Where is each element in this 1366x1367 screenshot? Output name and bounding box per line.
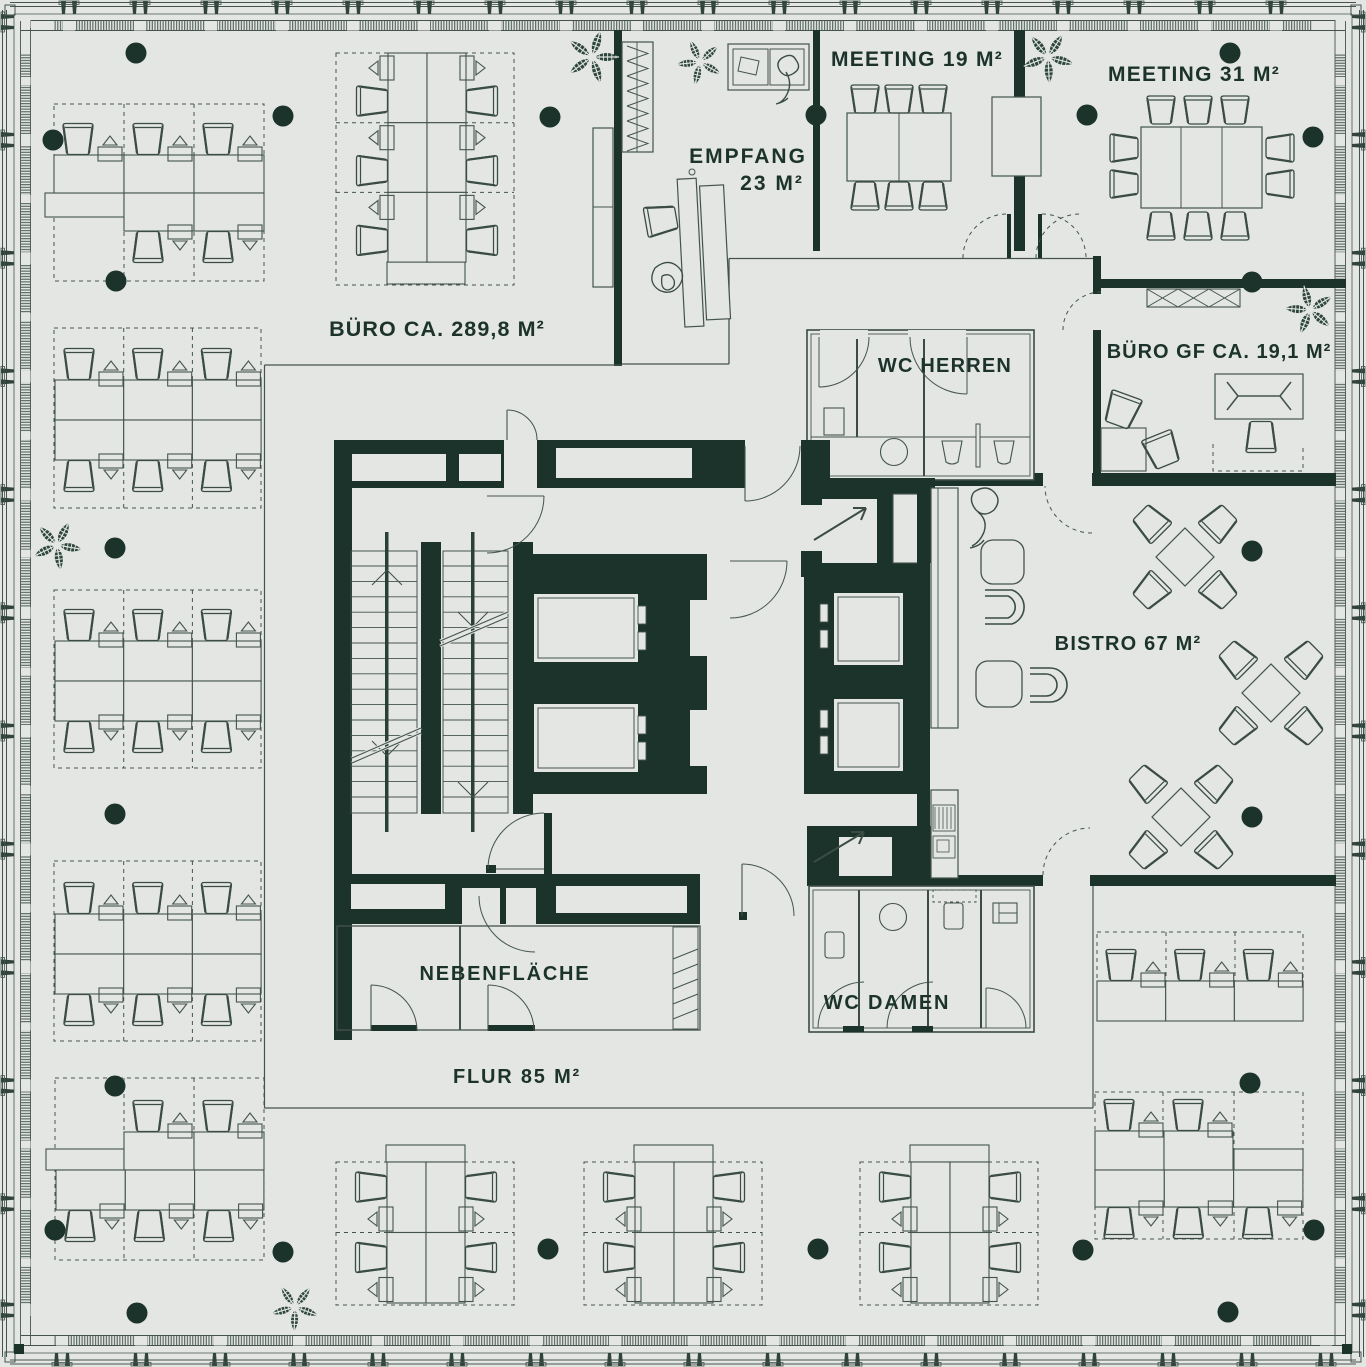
svg-text:FLUR 85 M²: FLUR 85 M² <box>453 1066 581 1088</box>
svg-text:WC HERREN: WC HERREN <box>878 355 1012 377</box>
svg-text:BÜRO CA. 289,8 M²: BÜRO CA. 289,8 M² <box>329 316 545 341</box>
svg-text:MEETING 19 M²: MEETING 19 M² <box>831 48 1003 71</box>
svg-text:23 M²: 23 M² <box>740 172 804 195</box>
svg-text:EMPFANG: EMPFANG <box>689 145 807 168</box>
svg-text:BISTRO 67 M²: BISTRO 67 M² <box>1055 633 1202 655</box>
svg-text:MEETING 31 M²: MEETING 31 M² <box>1108 63 1280 86</box>
svg-text:WC DAMEN: WC DAMEN <box>824 992 951 1014</box>
svg-text:BÜRO GF CA. 19,1 M²: BÜRO GF CA. 19,1 M² <box>1107 340 1332 363</box>
svg-text:NEBENFLÄCHE: NEBENFLÄCHE <box>420 962 591 985</box>
